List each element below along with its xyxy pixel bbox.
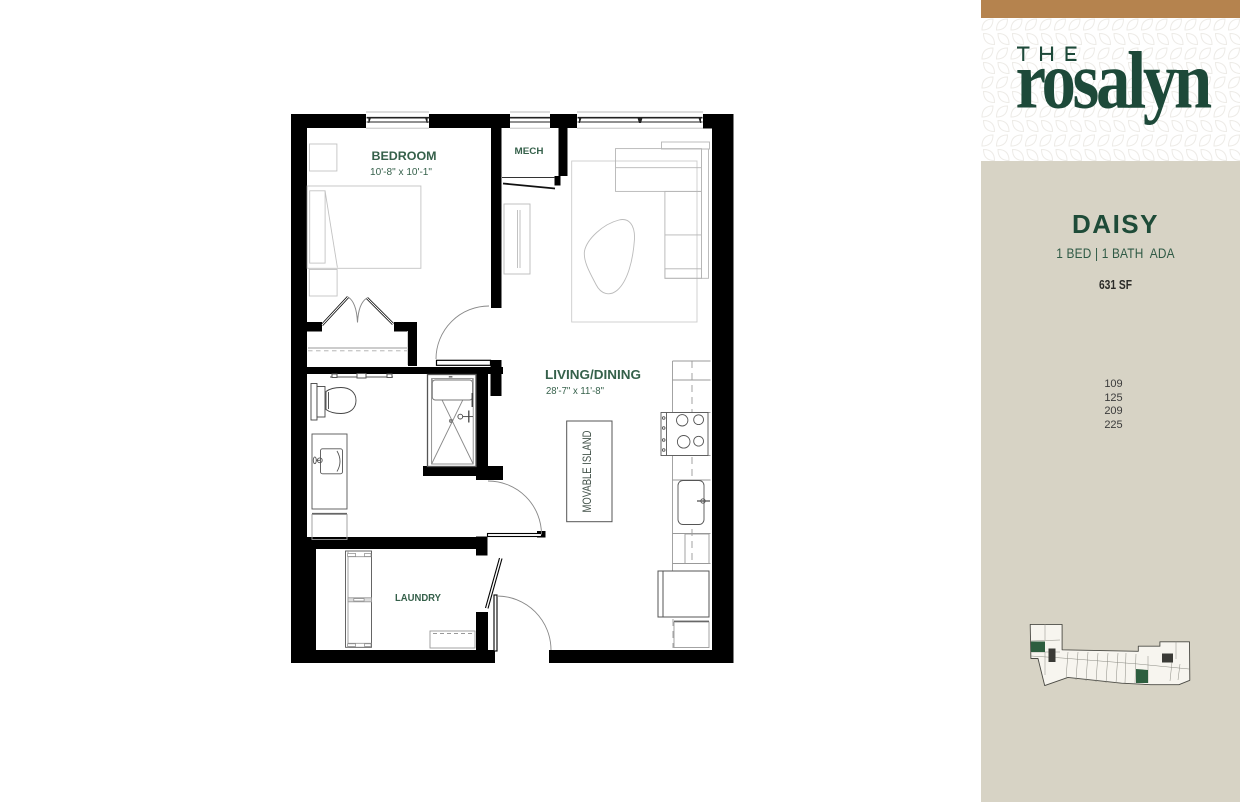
svg-text:rosalyn: rosalyn [1016,36,1212,126]
svg-text:MECH: MECH [515,146,544,157]
svg-text:MOVABLE ISLAND: MOVABLE ISLAND [582,431,594,513]
svg-text:28'-7" x 11'-8": 28'-7" x 11'-8" [546,385,604,397]
svg-text:LAUNDRY: LAUNDRY [395,592,441,604]
svg-text:BEDROOM: BEDROOM [372,149,437,163]
svg-text:10'-8" x 10'-1": 10'-8" x 10'-1" [370,166,432,178]
svg-text:LIVING/DINING: LIVING/DINING [545,368,641,382]
